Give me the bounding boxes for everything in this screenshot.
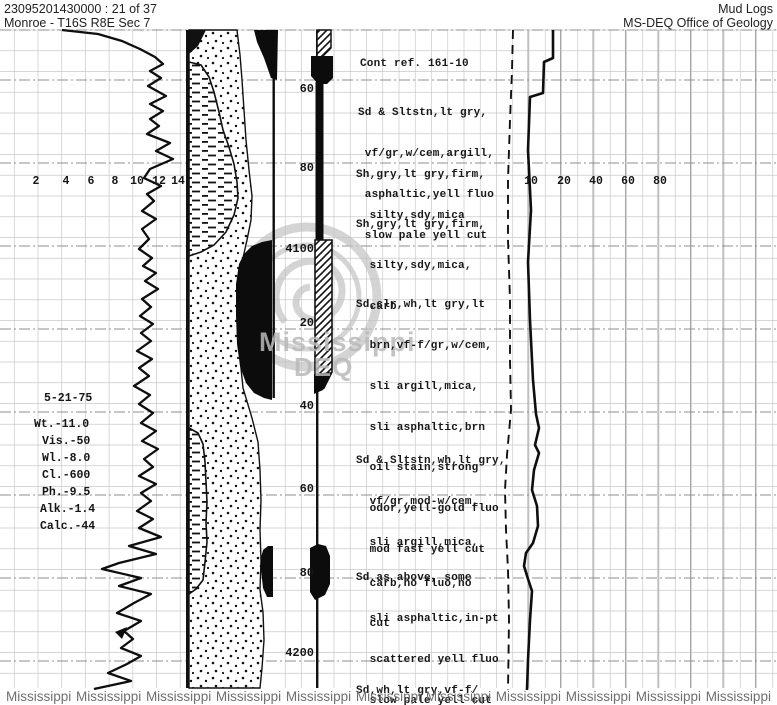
mud-log-page: 23095201430000 : 21 of 37 Monroe - T16S … — [0, 0, 777, 705]
right-scale-80: 80 — [653, 175, 667, 188]
left-scale-4: 4 — [63, 175, 70, 188]
watermark-item: Mississippi — [146, 689, 211, 704]
right-scale-60: 60 — [621, 175, 635, 188]
depth-label-4080: 80 — [270, 161, 314, 175]
desc-line: brn,vf-f/gr,w/cem, — [356, 340, 499, 354]
bottom-watermark-row: Mississippi Mississippi Mississippi Miss… — [0, 689, 777, 704]
watermark-item: Mississippi — [76, 689, 141, 704]
watermark-item: Mississippi — [496, 689, 561, 704]
right-scale-10: 10 — [524, 175, 538, 188]
desc-line: Sd,as above, some — [356, 572, 499, 586]
mud-chlorides: Cl.-600 — [42, 469, 90, 482]
watermark-item: Mississippi — [286, 689, 351, 704]
show-blob-top — [254, 30, 278, 80]
desc-line: Sh,gry,lt gry,firm, — [356, 219, 485, 233]
depth-label-4060: 60 — [270, 82, 314, 96]
mud-calcium: Calc.-44 — [40, 520, 95, 533]
watermark-item: Mississippi — [216, 689, 281, 704]
desc-line: sli asphaltic,in-pt — [356, 613, 499, 627]
deq-watermark-deq: DEQ — [294, 352, 353, 383]
desc-line: Sh,gry,lt gry,firm, — [356, 169, 485, 183]
desc-line: Sd & Sltstn,wh,lt gry, — [356, 455, 506, 469]
left-scale-12: 12 — [152, 175, 166, 188]
watermark-item: Mississippi — [706, 689, 771, 704]
watermark-item: Mississippi — [426, 689, 491, 704]
left-scale-14: 14 — [171, 175, 185, 188]
desc-line: Sd,clr,wh,lt gry,lt — [356, 299, 499, 313]
mud-water-loss: Wl.-8.0 — [42, 452, 90, 465]
mud-check-date: 5-21-75 — [44, 392, 92, 405]
drilling-rate-dashed-curve — [505, 30, 513, 690]
depth-label-4100: 4100 — [270, 242, 314, 256]
bar-hatch-top — [317, 30, 331, 58]
left-scale-6: 6 — [88, 175, 95, 188]
mud-alkalinity: Alk.-1.4 — [40, 503, 95, 516]
watermark-item: Mississippi — [636, 689, 701, 704]
watermark-item: Mississippi — [6, 689, 71, 704]
left-scale-10: 10 — [130, 175, 144, 188]
shale-lith-lower — [189, 428, 207, 594]
depth-label-4140: 40 — [270, 399, 314, 413]
mud-weight: Wt.-11.0 — [34, 418, 89, 431]
left-scale-8: 8 — [112, 175, 119, 188]
mud-viscosity: Vis.-50 — [42, 435, 90, 448]
right-scale-20: 20 — [557, 175, 571, 188]
desc-line: vf/gr,mod-w/cem, — [356, 496, 506, 510]
right-scale-40: 40 — [589, 175, 603, 188]
watermark-item: Mississippi — [356, 689, 421, 704]
depth-label-4120: 20 — [270, 316, 314, 330]
desc-line: sli argill,mica, — [356, 381, 499, 395]
bar-black-strip — [316, 82, 324, 240]
watermark-item: Mississippi — [566, 689, 631, 704]
desc-line: Sd & Sltstn,lt gry, — [358, 107, 494, 121]
desc-line: Cont ref. 161-10 — [360, 58, 469, 72]
depth-label-4180: 80 — [270, 566, 314, 580]
left-scale-2: 2 — [33, 175, 40, 188]
depth-label-4200: 4200 — [270, 646, 314, 660]
depth-label-4160: 60 — [270, 482, 314, 496]
mud-ph: Ph.-9.5 — [42, 486, 90, 499]
lith-left-border — [186, 30, 189, 688]
